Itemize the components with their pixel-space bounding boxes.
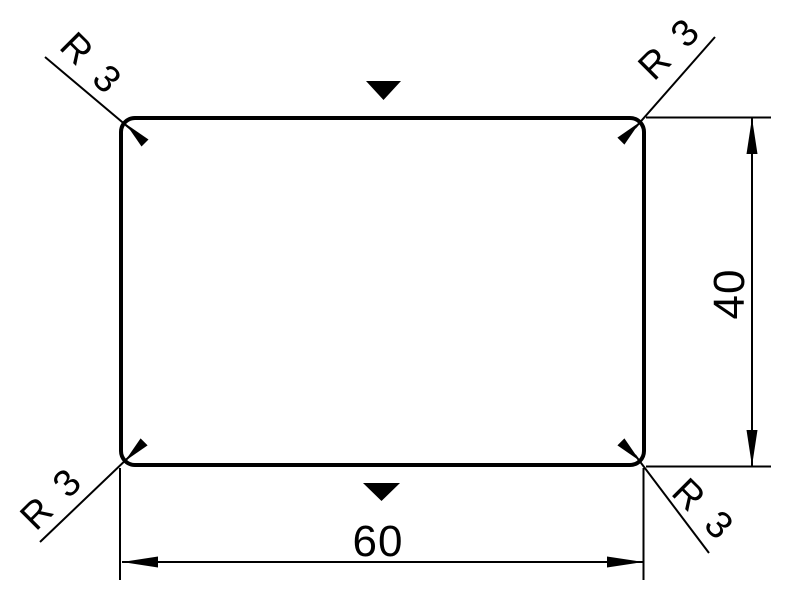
radius-label-bottom-right: R 3 — [663, 471, 743, 551]
technical-drawing: 60 40 R 3 R 3 R 3 — [0, 0, 800, 597]
arrowhead-left-icon — [122, 557, 158, 568]
surface-markers — [363, 81, 401, 501]
arrowhead-down-left-icon — [125, 438, 148, 461]
radius-callout-top-left: R 3 — [45, 25, 149, 147]
height-dimension: 40 — [646, 118, 771, 467]
drawing-canvas: 60 40 R 3 R 3 R 3 — [0, 0, 800, 597]
triangle-down-bottom-icon — [363, 483, 400, 501]
arrowhead-up-icon — [747, 118, 758, 154]
width-dimension-value: 60 — [353, 517, 404, 566]
triangle-down-top-icon — [366, 81, 401, 100]
radius-callout-bottom-right: R 3 — [617, 438, 743, 553]
part-outline — [121, 118, 644, 465]
radius-callout-bottom-left: R 3 — [13, 438, 148, 542]
arrowhead-down-right-icon — [617, 438, 640, 461]
radius-label-top-right: R 3 — [631, 9, 711, 89]
arrowhead-up-right-icon — [617, 122, 640, 145]
rounded-rectangle-outline — [121, 118, 644, 465]
radius-label-top-left: R 3 — [51, 25, 131, 105]
radius-callout-top-right: R 3 — [617, 9, 715, 145]
arrowhead-right-icon — [607, 557, 643, 568]
radius-label-bottom-left: R 3 — [13, 459, 93, 539]
arrowhead-up-left-icon — [126, 124, 149, 147]
arrowhead-down-icon — [747, 430, 758, 466]
height-dimension-value: 40 — [705, 269, 754, 320]
